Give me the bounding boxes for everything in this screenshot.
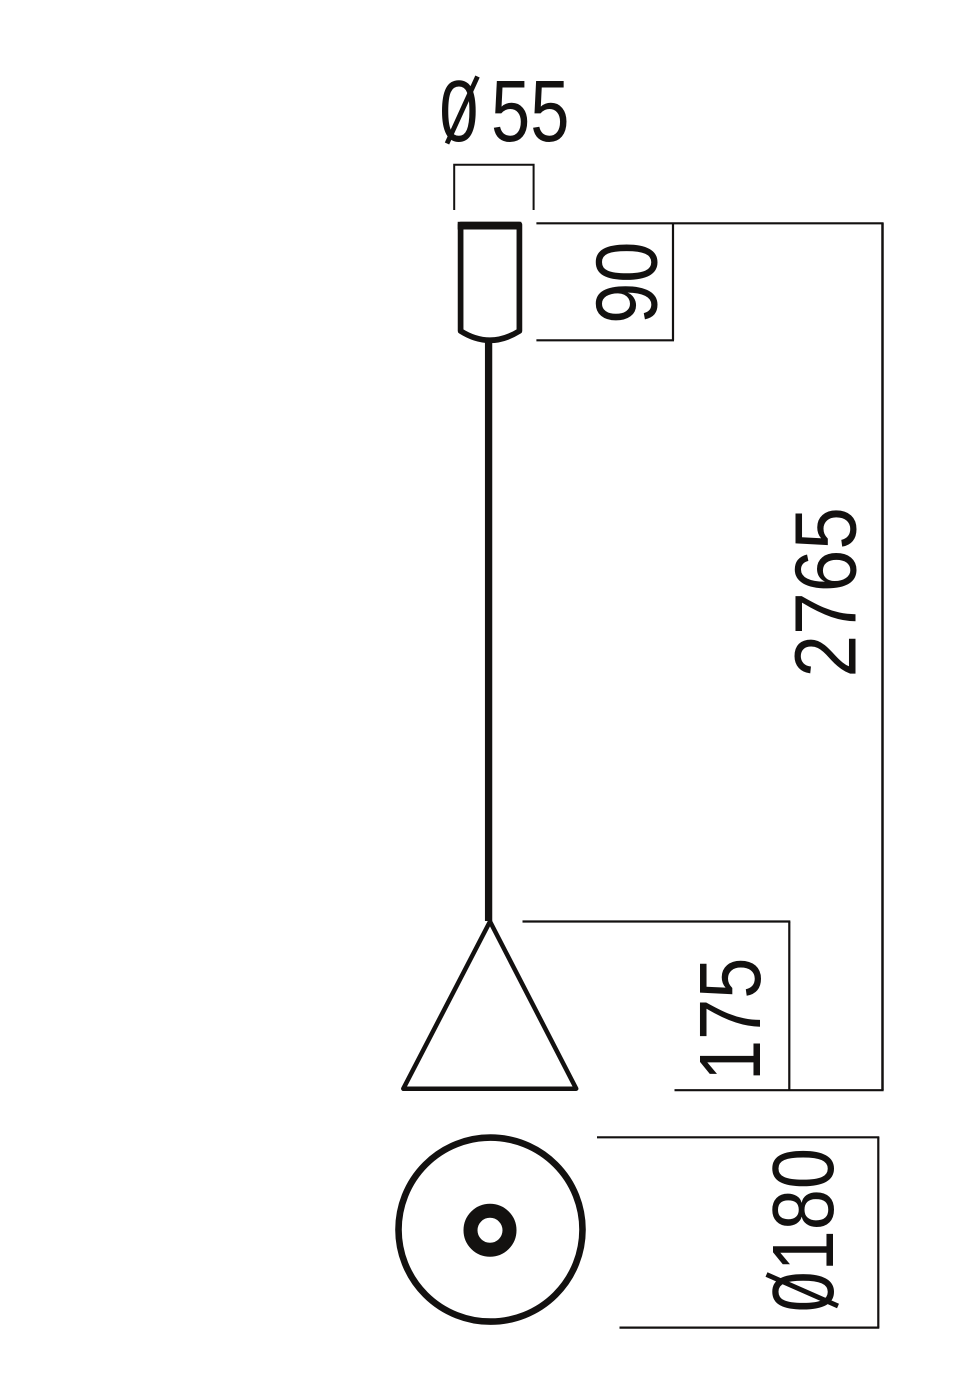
svg-text:90: 90 [579, 242, 676, 324]
svg-text:55: 55 [491, 62, 569, 160]
svg-text:2765: 2765 [778, 507, 875, 677]
svg-text:175: 175 [682, 958, 779, 1081]
svg-text:0180: 0180 [755, 1148, 852, 1312]
svg-text:0: 0 [439, 62, 478, 160]
